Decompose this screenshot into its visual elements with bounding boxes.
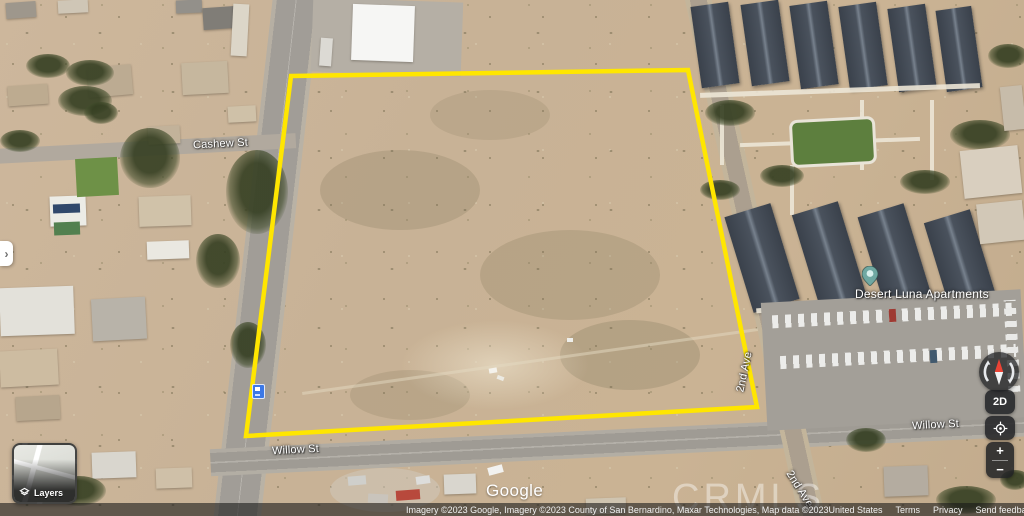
apartment-building xyxy=(740,0,789,86)
tree xyxy=(846,428,886,452)
zoom-control: + − xyxy=(986,442,1014,478)
house-roof xyxy=(181,61,229,95)
tree xyxy=(196,234,240,288)
tree xyxy=(230,322,266,368)
tree xyxy=(66,60,114,86)
apartment-building xyxy=(887,4,936,92)
tree xyxy=(0,130,40,152)
shrubs xyxy=(950,120,1010,150)
house-roof xyxy=(176,0,202,13)
apartment-building xyxy=(690,2,739,88)
lawn xyxy=(54,222,80,236)
house-roof xyxy=(58,0,89,14)
street-label-willow-right: Willow St xyxy=(912,418,960,432)
attribution-bar: Imagery ©2023 Google, Imagery ©2023 Coun… xyxy=(0,503,1024,516)
compass-control[interactable] xyxy=(979,352,1019,392)
house-roof xyxy=(91,297,147,342)
vehicle xyxy=(368,493,388,503)
house-roof xyxy=(156,467,193,488)
apartment-building xyxy=(789,1,838,89)
house-roof xyxy=(15,395,60,421)
place-pin-icon[interactable] xyxy=(862,266,878,286)
house-roof xyxy=(7,84,48,107)
warehouse-roof xyxy=(0,286,75,337)
scrub-patch xyxy=(480,230,660,320)
house-roof xyxy=(228,105,257,122)
house-roof xyxy=(138,195,191,227)
layers-button[interactable]: Layers xyxy=(12,443,77,504)
link-united-states[interactable]: United States xyxy=(828,505,882,515)
link-privacy[interactable]: Privacy xyxy=(933,505,963,515)
house-roof xyxy=(92,451,137,479)
tree xyxy=(988,44,1024,68)
scrub-patch xyxy=(430,90,550,140)
building-roof xyxy=(883,465,928,497)
walkway xyxy=(930,100,934,180)
2d-label: 2D xyxy=(993,396,1007,408)
house-roof xyxy=(0,349,59,388)
apartment-building xyxy=(935,6,982,92)
trailer xyxy=(319,38,333,67)
apartment-building xyxy=(724,203,799,313)
chevron-right-icon: › xyxy=(5,247,9,261)
building-roof xyxy=(976,200,1024,245)
lawn xyxy=(75,157,119,197)
scrub-patch xyxy=(320,150,480,230)
shrubs xyxy=(760,165,804,187)
google-logo: Google xyxy=(486,481,543,501)
building-roof xyxy=(960,145,1023,199)
tree xyxy=(26,54,70,78)
parked-car-blue xyxy=(930,350,938,363)
shrubs xyxy=(705,100,755,126)
map-type-2d-button[interactable]: 2D xyxy=(985,390,1015,414)
my-location-button[interactable] xyxy=(985,416,1015,440)
car xyxy=(487,464,504,476)
zoom-in-button[interactable]: + xyxy=(986,442,1014,460)
building-roof xyxy=(1000,85,1024,131)
link-send-feedback[interactable]: Send feedback xyxy=(976,505,1024,515)
courtyard-lawn xyxy=(789,116,877,168)
house-roof xyxy=(5,1,36,19)
transit-stop-icon[interactable] xyxy=(252,384,265,399)
zoom-out-button[interactable]: − xyxy=(986,461,1014,479)
shed-roof xyxy=(147,240,190,259)
my-location-icon xyxy=(993,421,1008,436)
vehicle xyxy=(348,475,367,486)
layers-icon xyxy=(19,487,30,498)
map-canvas[interactable] xyxy=(0,0,1024,516)
imagery-credit: Imagery ©2023 Google, Imagery ©2023 Coun… xyxy=(406,505,828,515)
link-terms[interactable]: Terms xyxy=(896,505,921,515)
parked-car-red xyxy=(889,309,897,322)
tree xyxy=(226,150,288,234)
tree xyxy=(120,128,180,188)
layers-label: Layers xyxy=(34,488,63,498)
place-label-apartments[interactable]: Desert Luna Apartments xyxy=(855,287,989,301)
tree xyxy=(84,102,118,124)
debris xyxy=(567,338,573,342)
shrubs xyxy=(900,170,950,194)
white-building-roof xyxy=(351,4,415,62)
side-panel-expand-button[interactable]: › xyxy=(0,241,13,266)
shrubs xyxy=(700,180,740,200)
street-label-willow-left: Willow St xyxy=(272,443,320,457)
wall xyxy=(231,4,250,57)
walkway xyxy=(700,83,980,98)
shed-roof xyxy=(444,473,477,494)
apartment-building xyxy=(838,2,887,90)
compass-needle-icon xyxy=(979,352,1019,392)
google-maps-satellite-view: Cashew St Willow St Willow St 2nd Ave 2n… xyxy=(0,0,1024,516)
solar-panels xyxy=(53,204,80,214)
vehicle-red xyxy=(396,489,421,501)
